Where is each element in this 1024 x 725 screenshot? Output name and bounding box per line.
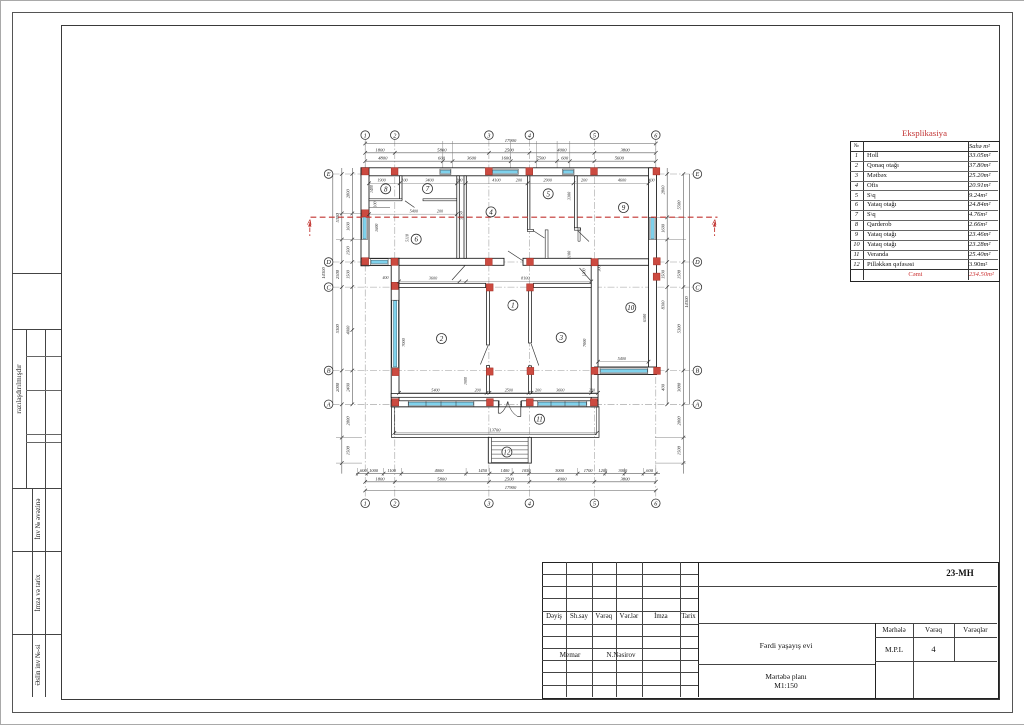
svg-text:8100: 8100 xyxy=(521,276,530,281)
svg-text:A: A xyxy=(695,402,700,409)
svg-text:200: 200 xyxy=(456,177,463,182)
svg-text:600: 600 xyxy=(646,468,653,473)
svg-text:1700: 1700 xyxy=(584,468,594,473)
svg-text:1000: 1000 xyxy=(369,468,379,473)
svg-text:4: 4 xyxy=(528,501,531,508)
svg-text:1500: 1500 xyxy=(677,445,682,455)
svg-text:400: 400 xyxy=(648,177,655,182)
svg-text:2900: 2900 xyxy=(543,177,552,182)
svg-text:7500: 7500 xyxy=(536,156,546,161)
svg-text:13700: 13700 xyxy=(489,427,501,432)
svg-text:200: 200 xyxy=(581,177,588,182)
svg-text:7000: 7000 xyxy=(401,337,406,346)
svg-text:200: 200 xyxy=(535,387,541,392)
svg-text:5: 5 xyxy=(546,190,550,198)
svg-text:4600: 4600 xyxy=(618,177,627,182)
svg-text:1400: 1400 xyxy=(369,185,374,193)
svg-text:A: A xyxy=(306,219,312,227)
svg-text:3300: 3300 xyxy=(566,191,571,200)
svg-text:1400: 1400 xyxy=(501,468,511,473)
svg-text:7: 7 xyxy=(426,185,430,193)
svg-text:400: 400 xyxy=(660,383,665,390)
svg-text:1: 1 xyxy=(364,132,367,139)
svg-text:3100: 3100 xyxy=(566,250,571,259)
svg-text:200: 200 xyxy=(437,209,444,214)
svg-text:2: 2 xyxy=(440,335,444,343)
svg-text:3: 3 xyxy=(558,334,563,342)
svg-text:B: B xyxy=(696,368,700,375)
svg-text:14300: 14300 xyxy=(684,296,689,308)
svg-text:E: E xyxy=(326,171,331,178)
svg-text:200: 200 xyxy=(589,387,595,392)
svg-text:2500: 2500 xyxy=(335,269,340,279)
svg-text:5: 5 xyxy=(593,132,596,139)
svg-text:600: 600 xyxy=(561,156,569,161)
svg-text:2000: 2000 xyxy=(335,382,340,392)
svg-text:5500: 5500 xyxy=(677,200,682,210)
svg-text:5300: 5300 xyxy=(677,324,682,334)
svg-text:300: 300 xyxy=(597,266,602,272)
svg-text:2500: 2500 xyxy=(505,387,513,392)
svg-text:8: 8 xyxy=(384,185,388,193)
svg-text:3400: 3400 xyxy=(425,177,434,182)
svg-text:1500: 1500 xyxy=(345,269,350,279)
svg-text:12: 12 xyxy=(503,449,511,457)
svg-text:2500: 2500 xyxy=(505,147,515,152)
svg-text:1900: 1900 xyxy=(463,377,468,385)
svg-text:3600: 3600 xyxy=(467,156,477,161)
svg-text:600: 600 xyxy=(438,156,446,161)
svg-text:1500: 1500 xyxy=(660,269,665,279)
svg-text:2800: 2800 xyxy=(345,189,350,199)
svg-text:2000: 2000 xyxy=(345,416,350,426)
svg-text:1200: 1200 xyxy=(598,468,608,473)
svg-text:1500: 1500 xyxy=(677,269,682,279)
svg-text:1600: 1600 xyxy=(660,223,665,233)
svg-text:3600: 3600 xyxy=(429,276,438,281)
svg-text:A: A xyxy=(711,219,717,227)
svg-text:3: 3 xyxy=(486,132,490,139)
svg-text:600: 600 xyxy=(360,468,367,473)
svg-text:E: E xyxy=(695,171,700,178)
svg-text:1300: 1300 xyxy=(581,269,586,277)
svg-text:1500: 1500 xyxy=(345,445,350,455)
svg-text:1800: 1800 xyxy=(375,147,385,152)
svg-text:14300: 14300 xyxy=(321,267,326,279)
svg-text:4000: 4000 xyxy=(557,476,567,481)
svg-text:3000: 3000 xyxy=(677,382,682,392)
svg-text:8300: 8300 xyxy=(660,300,665,310)
svg-text:5600: 5600 xyxy=(615,156,625,161)
svg-text:3800: 3800 xyxy=(621,476,631,481)
svg-text:1600: 1600 xyxy=(345,221,350,231)
svg-text:4000: 4000 xyxy=(345,325,350,335)
svg-text:5800: 5800 xyxy=(437,147,447,152)
svg-text:A: A xyxy=(326,402,331,409)
svg-text:5: 5 xyxy=(593,501,596,508)
svg-text:2: 2 xyxy=(393,132,396,139)
svg-text:11: 11 xyxy=(536,416,542,424)
svg-text:1450: 1450 xyxy=(478,468,488,473)
svg-text:3800: 3800 xyxy=(621,147,631,152)
svg-text:5118: 5118 xyxy=(405,233,410,242)
svg-text:400: 400 xyxy=(383,275,389,280)
svg-text:2: 2 xyxy=(393,501,396,508)
svg-text:1050: 1050 xyxy=(522,468,532,473)
svg-text:1100: 1100 xyxy=(387,468,396,473)
svg-text:1500: 1500 xyxy=(345,246,350,256)
svg-text:1800: 1800 xyxy=(375,476,385,481)
svg-text:4000: 4000 xyxy=(435,468,445,473)
svg-text:100: 100 xyxy=(401,177,408,182)
svg-text:6: 6 xyxy=(414,236,418,244)
svg-text:5300: 5300 xyxy=(335,324,340,334)
svg-text:4000: 4000 xyxy=(557,147,567,152)
svg-text:4100: 4100 xyxy=(492,177,501,182)
svg-text:9: 9 xyxy=(622,204,626,212)
svg-text:2400: 2400 xyxy=(345,382,350,392)
svg-text:1: 1 xyxy=(511,302,515,310)
svg-text:2800: 2800 xyxy=(660,185,665,195)
svg-text:D: D xyxy=(325,259,331,266)
svg-text:2500: 2500 xyxy=(505,476,515,481)
svg-text:5400: 5400 xyxy=(618,356,627,361)
svg-text:4800: 4800 xyxy=(378,156,388,161)
svg-text:6500: 6500 xyxy=(642,313,647,322)
svg-text:3: 3 xyxy=(486,501,490,508)
svg-text:100: 100 xyxy=(373,202,378,208)
svg-text:5400: 5400 xyxy=(431,387,439,392)
svg-text:200: 200 xyxy=(516,177,523,182)
svg-text:17900: 17900 xyxy=(505,485,517,490)
svg-text:5750: 5750 xyxy=(459,210,464,219)
svg-text:2000: 2000 xyxy=(677,416,682,426)
svg-text:3000: 3000 xyxy=(618,468,628,473)
svg-text:10: 10 xyxy=(627,304,635,312)
svg-text:5400: 5400 xyxy=(410,209,419,214)
svg-text:1600: 1600 xyxy=(501,156,511,161)
svg-text:B: B xyxy=(327,368,331,375)
svg-text:1600: 1600 xyxy=(374,223,379,232)
svg-text:1: 1 xyxy=(364,501,367,508)
svg-text:4: 4 xyxy=(528,132,531,139)
svg-text:D: D xyxy=(694,259,700,266)
svg-text:7000: 7000 xyxy=(582,338,587,347)
svg-text:3000: 3000 xyxy=(555,468,565,473)
svg-text:1900: 1900 xyxy=(377,177,386,182)
svg-text:3600: 3600 xyxy=(556,387,564,392)
svg-text:5800: 5800 xyxy=(437,476,447,481)
svg-text:4: 4 xyxy=(489,208,493,216)
svg-text:200: 200 xyxy=(475,387,481,392)
